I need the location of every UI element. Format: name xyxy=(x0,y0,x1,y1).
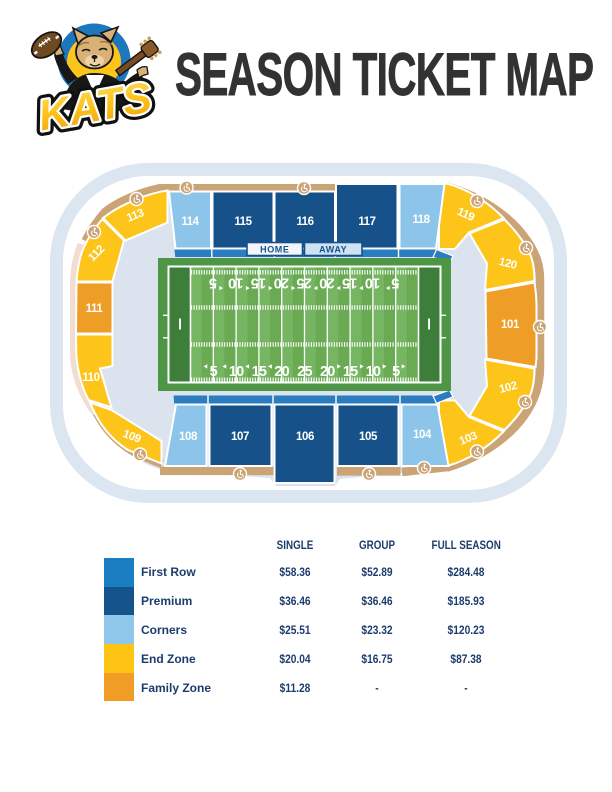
svg-text:104: 104 xyxy=(413,429,432,441)
svg-text:5: 5 xyxy=(210,364,218,380)
svg-text:10: 10 xyxy=(366,364,381,380)
svg-text:15: 15 xyxy=(251,274,266,290)
svg-text:101: 101 xyxy=(501,319,520,331)
svg-text:117: 117 xyxy=(358,216,375,228)
svg-text:15: 15 xyxy=(342,274,357,290)
svg-text:20: 20 xyxy=(274,274,289,290)
svg-text:15: 15 xyxy=(343,364,358,380)
svg-text:10: 10 xyxy=(365,274,380,290)
svg-text:25: 25 xyxy=(297,364,312,380)
svg-text:106: 106 xyxy=(296,431,314,443)
svg-text:5: 5 xyxy=(392,364,400,380)
svg-text:10: 10 xyxy=(228,274,243,290)
svg-text:20: 20 xyxy=(320,364,335,380)
svg-text:10: 10 xyxy=(229,364,244,380)
svg-text:AWAY: AWAY xyxy=(319,244,347,254)
svg-text:20: 20 xyxy=(319,274,334,290)
svg-text:15: 15 xyxy=(252,364,267,380)
svg-text:107: 107 xyxy=(231,431,249,443)
svg-text:118: 118 xyxy=(412,214,430,226)
svg-text:108: 108 xyxy=(179,431,198,443)
svg-text:5: 5 xyxy=(391,274,399,290)
svg-text:105: 105 xyxy=(359,431,378,443)
svg-text:25: 25 xyxy=(297,274,312,290)
svg-text:111: 111 xyxy=(86,303,104,315)
svg-text:114: 114 xyxy=(181,216,199,228)
svg-text:116: 116 xyxy=(296,216,313,228)
svg-text:20: 20 xyxy=(274,364,289,380)
svg-text:115: 115 xyxy=(234,216,252,228)
svg-text:110: 110 xyxy=(82,372,99,384)
svg-text:HOME: HOME xyxy=(260,244,289,254)
svg-text:5: 5 xyxy=(209,274,217,290)
